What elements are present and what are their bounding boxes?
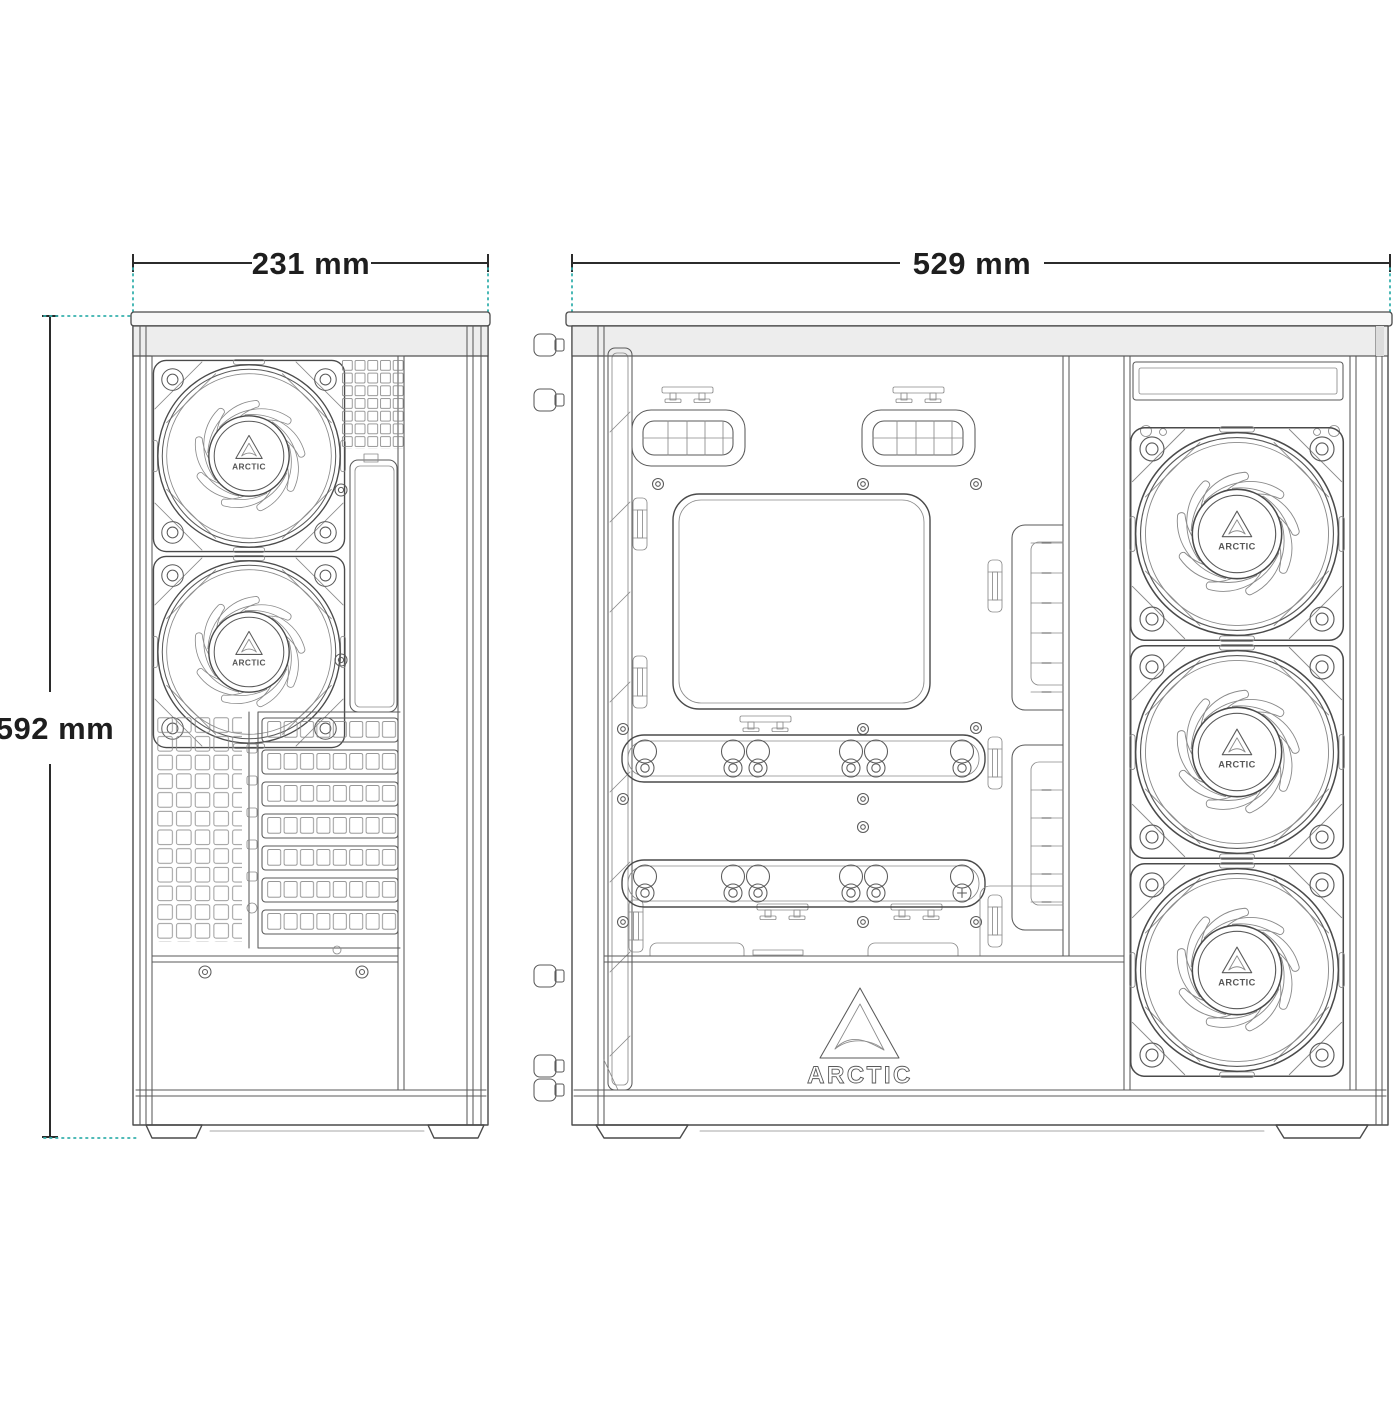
height-dimension-label: 592 mm	[0, 711, 114, 746]
shroud-brand-text: ARCTIC	[807, 1062, 913, 1089]
rear-panel-thumbscrews	[534, 334, 564, 1101]
rear-vent-grid-top	[341, 359, 404, 449]
rear-view	[131, 312, 490, 1138]
side-view: ARCTIC	[534, 312, 1392, 1138]
rear-top-lip	[131, 312, 490, 326]
side-top-lip	[566, 312, 1392, 326]
side-top-frame-band	[572, 326, 1388, 356]
rear-foot-right	[428, 1125, 484, 1138]
expansion-slot-covers	[262, 718, 398, 934]
dimension-width: 231 mm	[133, 246, 488, 312]
depth-dimension-label: 529 mm	[913, 246, 1031, 281]
rear-foot-left	[146, 1125, 202, 1138]
width-dimension-label: 231 mm	[252, 246, 370, 281]
rear-vent-grid-left	[156, 716, 242, 942]
rear-top-frame-band	[133, 326, 488, 356]
side-foot-left	[596, 1125, 688, 1138]
side-foot-right	[1276, 1125, 1368, 1138]
dimension-height: 592 mm	[0, 316, 136, 1138]
dimension-depth: 529 mm	[572, 246, 1390, 312]
case-dimension-diagram: ARCTIC	[0, 0, 1400, 1400]
technical-drawing-page: ARCTIC	[0, 0, 1400, 1400]
